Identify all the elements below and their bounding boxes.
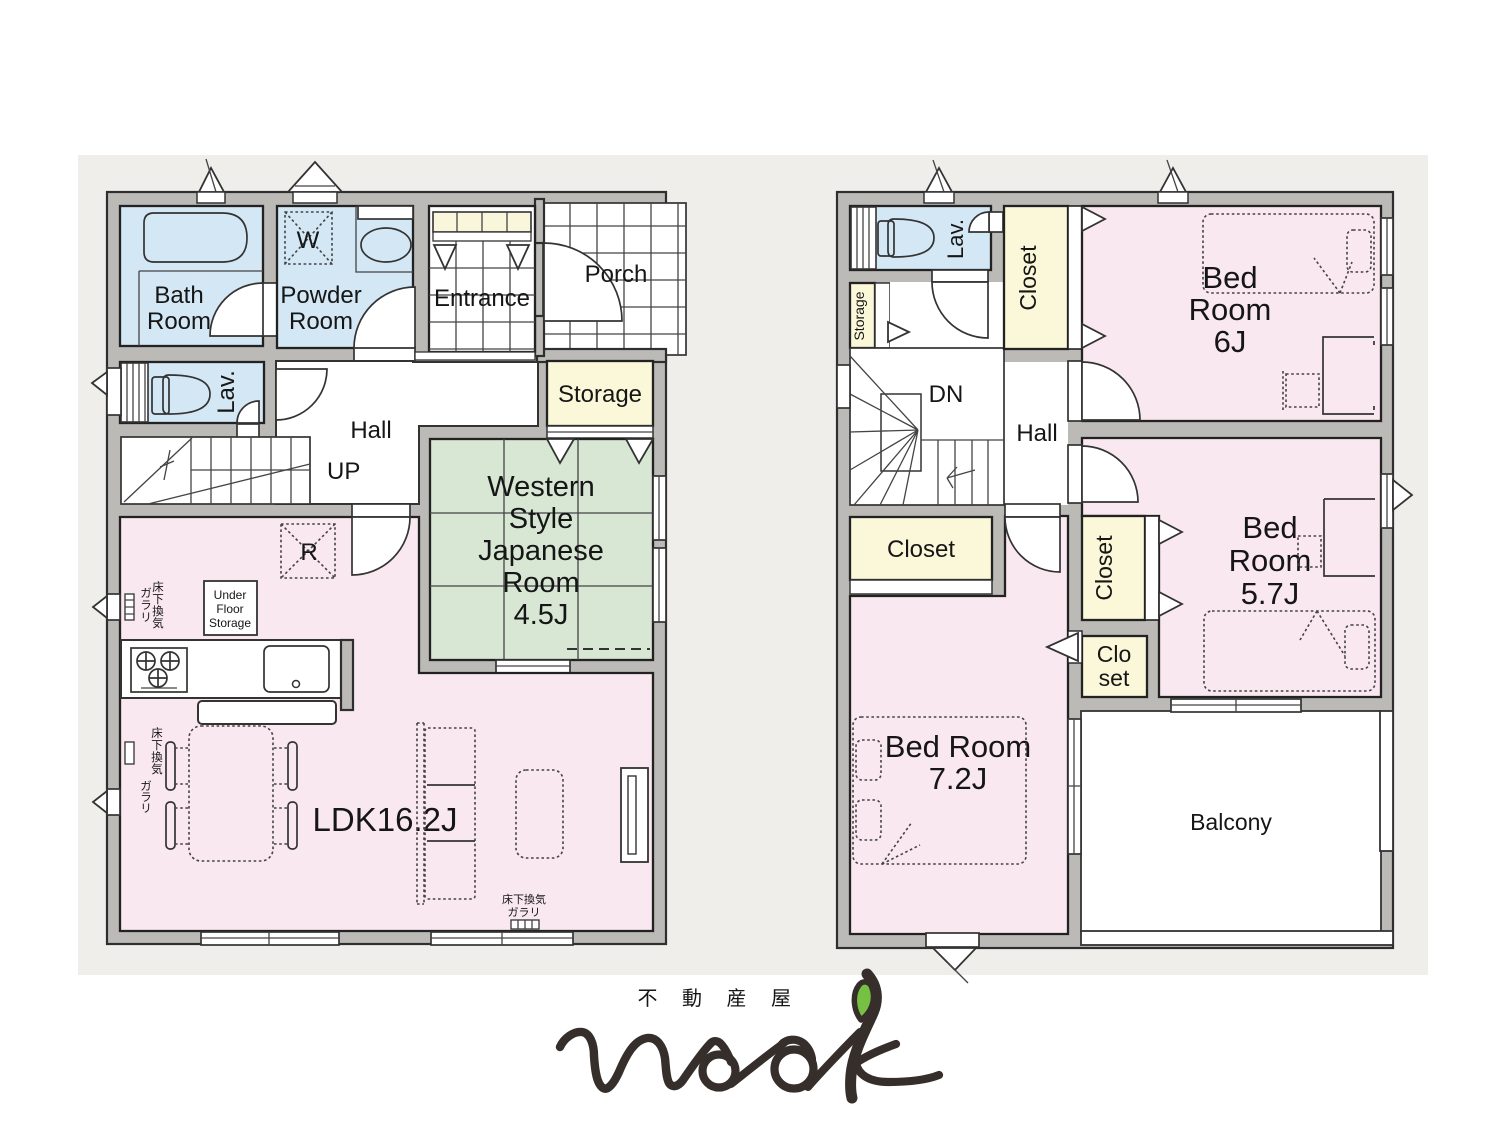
svg-text:Clo: Clo xyxy=(1097,641,1132,667)
svg-text:5.7J: 5.7J xyxy=(1241,576,1300,611)
svg-text:7.2J: 7.2J xyxy=(929,761,988,796)
svg-text:Storage: Storage xyxy=(851,291,867,340)
svg-text:Hall: Hall xyxy=(350,417,391,444)
svg-text:Room: Room xyxy=(147,308,211,335)
svg-text:Closet: Closet xyxy=(1015,245,1041,311)
svg-text:Closet: Closet xyxy=(1091,535,1117,601)
svg-text:Under: Under xyxy=(214,588,247,602)
svg-text:Western: Western xyxy=(487,471,594,503)
svg-text:ガラリ: ガラリ xyxy=(508,906,541,919)
svg-text:Room: Room xyxy=(1229,543,1312,578)
svg-text:Hall: Hall xyxy=(1016,420,1057,447)
svg-text:LDK16.2J: LDK16.2J xyxy=(313,801,458,838)
svg-text:Storage: Storage xyxy=(558,381,642,408)
svg-text:4.5J: 4.5J xyxy=(514,599,569,631)
svg-text:6J: 6J xyxy=(1214,324,1247,359)
svg-text:床下換気: 床下換気 xyxy=(152,580,164,630)
svg-text:Porch: Porch xyxy=(585,261,648,288)
svg-text:床下換気: 床下換気 xyxy=(502,892,546,906)
svg-text:Japanese: Japanese xyxy=(478,535,604,567)
svg-text:Bed: Bed xyxy=(1242,510,1297,545)
svg-text:Balcony: Balcony xyxy=(1190,809,1272,835)
svg-text:Room: Room xyxy=(289,308,353,335)
svg-text:W: W xyxy=(297,227,320,254)
svg-text:Room: Room xyxy=(1189,292,1272,327)
svg-text:DN: DN xyxy=(929,381,964,408)
svg-text:Bed Room: Bed Room xyxy=(885,729,1031,764)
svg-text:UP: UP xyxy=(327,458,360,485)
svg-text:Floor: Floor xyxy=(216,602,243,616)
svg-text:Storage: Storage xyxy=(209,616,251,630)
svg-text:Bath: Bath xyxy=(154,282,203,309)
svg-text:Lav.: Lav. xyxy=(943,219,968,259)
svg-text:Entrance: Entrance xyxy=(434,285,530,312)
svg-text:set: set xyxy=(1099,665,1130,691)
svg-text:Closet: Closet xyxy=(887,536,955,563)
svg-text:ガラリ: ガラリ xyxy=(140,780,152,815)
svg-text:床下換気: 床下換気 xyxy=(151,726,163,776)
svg-text:Lav.: Lav. xyxy=(213,370,240,414)
svg-text:Powder: Powder xyxy=(280,282,361,309)
svg-text:R: R xyxy=(300,539,317,566)
svg-text:Bed: Bed xyxy=(1202,260,1257,295)
svg-text:不動産屋: 不動産屋 xyxy=(638,987,816,1010)
svg-text:Style: Style xyxy=(509,503,573,535)
svg-text:Room: Room xyxy=(502,567,579,599)
svg-text:ガラリ: ガラリ xyxy=(140,587,152,624)
